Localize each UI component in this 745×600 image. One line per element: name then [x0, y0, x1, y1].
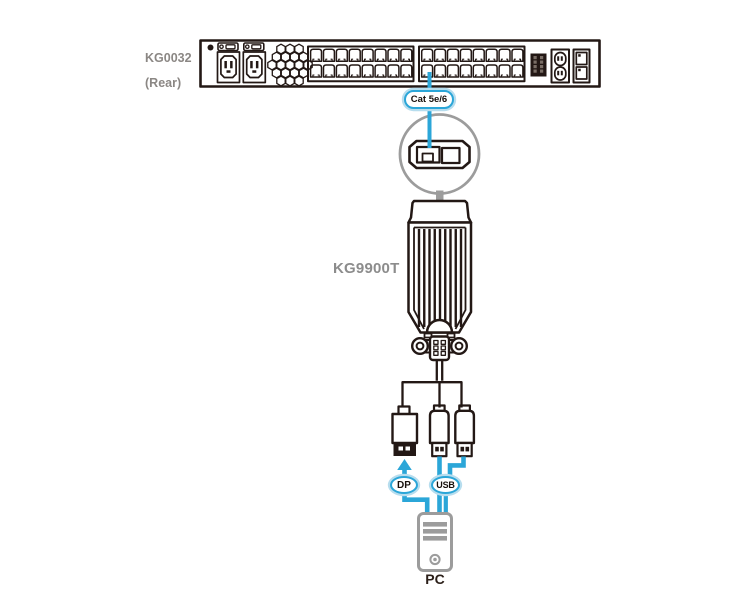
device-top-face	[410, 141, 470, 168]
dvi-connector	[412, 334, 467, 361]
usb-connector-2	[455, 406, 474, 457]
switch-model: KG0032	[145, 51, 192, 65]
drive-bay-1	[423, 522, 447, 527]
cable-label: Cat 5e/6	[411, 94, 447, 105]
dp-connector	[393, 407, 418, 457]
dp-badge-label: DP	[397, 480, 411, 491]
circle-to-device-stub	[436, 191, 444, 201]
misc-pin-block	[531, 54, 547, 77]
dp-arrow	[397, 459, 412, 470]
thumbscrew-left	[412, 338, 428, 354]
usb-badge-label: USB	[436, 480, 454, 490]
dp-cable-line	[405, 492, 428, 515]
cable-label-pill: Cat 5e/6	[404, 90, 454, 109]
switch-view: (Rear)	[145, 76, 181, 90]
ground-screw	[208, 45, 214, 51]
pc-label: PC	[415, 571, 455, 587]
device-label: KG9900T	[333, 260, 399, 277]
device-cap	[409, 201, 472, 223]
diagram-art	[0, 0, 745, 600]
switch-label: KG0032 (Rear)	[145, 52, 192, 90]
drive-bay-3	[423, 536, 447, 541]
usb-badge: USB	[431, 476, 460, 494]
connection-diagram: KG0032 (Rear) Cat 5e/6 KG9900T DP USB PC	[0, 0, 745, 600]
thumbscrew-right	[451, 338, 467, 354]
pc-tower	[419, 514, 452, 571]
kg9900t-body	[403, 201, 472, 408]
split-cable	[403, 360, 462, 408]
kvm-switch-rear-panel	[201, 41, 600, 87]
usb-connector-1	[430, 406, 449, 457]
drive-bay-2	[423, 529, 447, 534]
dp-badge: DP	[390, 476, 418, 494]
ribbed-grip	[419, 229, 461, 327]
